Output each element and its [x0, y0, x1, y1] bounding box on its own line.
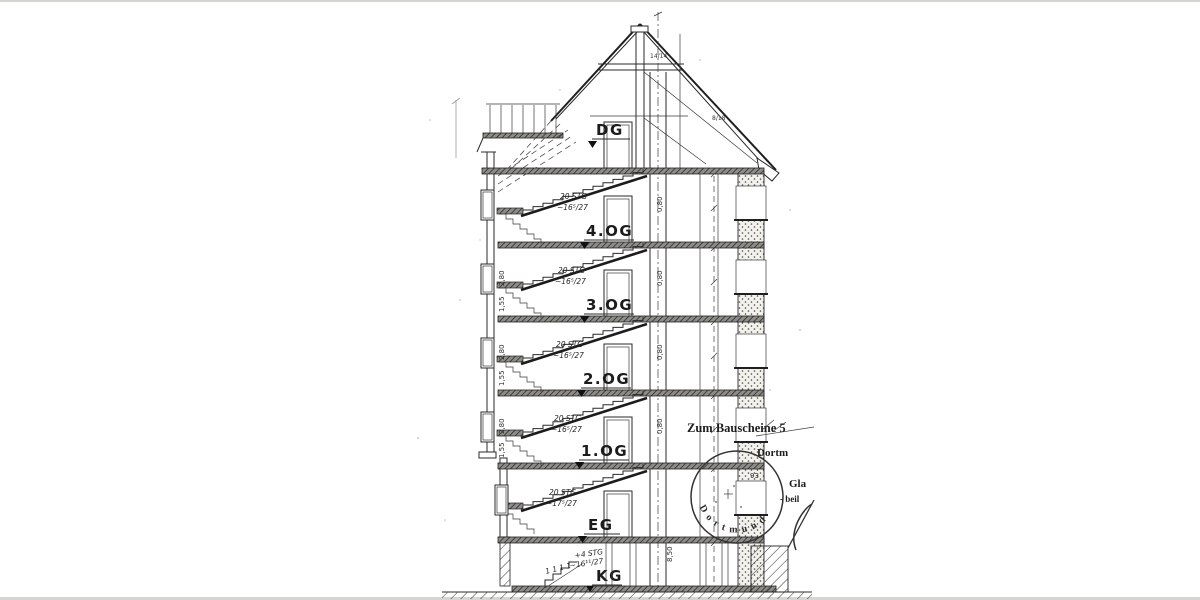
stair-note-ratio: ~17⁵/27 [546, 499, 577, 508]
building-section-drawing: 14/14 8/18 [0, 0, 1200, 600]
shaft-dim: 0,80 [656, 418, 664, 434]
wall-dim: 1,55 [498, 370, 506, 386]
roof-dim-label: 8/18 [712, 115, 726, 122]
side-text-2: - beil [780, 494, 800, 504]
floor-label-3og: 3.OG [586, 296, 633, 314]
floor-label-kg: KG [596, 567, 623, 585]
stair-note-steps: 20 STG [549, 488, 576, 497]
total-height-dim: 8,50 [666, 546, 674, 562]
stair-note-ratio: ~16⁵/27 [551, 425, 582, 434]
floor-label-1og: 1.OG [581, 442, 628, 460]
signature-mark [788, 500, 814, 548]
stair-landing [497, 208, 523, 214]
side-text-1: Gla [789, 478, 807, 490]
signature-mark [794, 504, 812, 550]
roof-dim-label: 14/14 [650, 53, 667, 60]
floor-label-eg: EG [588, 516, 614, 534]
chimney-shaft: 0,80 0,80 0,80 0,80 8,50 [650, 12, 674, 592]
basement-left-wall [500, 537, 510, 586]
city-name-fraktur: Dortm [757, 447, 788, 459]
wall-dim: 1,55 [498, 296, 506, 312]
cornice-band [479, 452, 496, 458]
shaft-dim: 0,80 [656, 196, 664, 212]
wall-dim: 2,80 [498, 270, 506, 286]
floor-label-4og: 4.OG [586, 222, 633, 240]
permit-annotation: Zum Bauscheine 5 [687, 421, 786, 435]
stair-note-ratio: ~16⁵/27 [555, 277, 586, 286]
stair-note-ratio: ~16⁵/27 [553, 351, 584, 360]
stair-note-steps: 20 STG [560, 192, 587, 201]
floor-label-2og: 2.OG [583, 370, 630, 388]
stair-note-steps: 20 STG [558, 266, 585, 275]
wall-dim: 2,80 [498, 344, 506, 360]
shaft-dim: 0,80 [656, 270, 664, 286]
scanned-blueprint-page: 14/14 8/18 [0, 0, 1200, 600]
ground-hatch [442, 592, 812, 599]
shaft-dim: 0,80 [656, 344, 664, 360]
stair-note-steps: 20 STG [556, 340, 583, 349]
wall-dim: 2,80 [498, 418, 506, 434]
foundation-pit [751, 546, 788, 592]
floor-label-dg: DG [596, 121, 624, 139]
wall-dim: 1,55 [498, 442, 506, 458]
stair-note-steps: 20 STG [554, 414, 581, 423]
level-marker [588, 141, 597, 148]
stair-note-ratio: ~16⁵/27 [557, 203, 588, 212]
roof-structure: 14/14 8/18 [503, 24, 779, 181]
stamp-number: 93 [750, 472, 759, 480]
